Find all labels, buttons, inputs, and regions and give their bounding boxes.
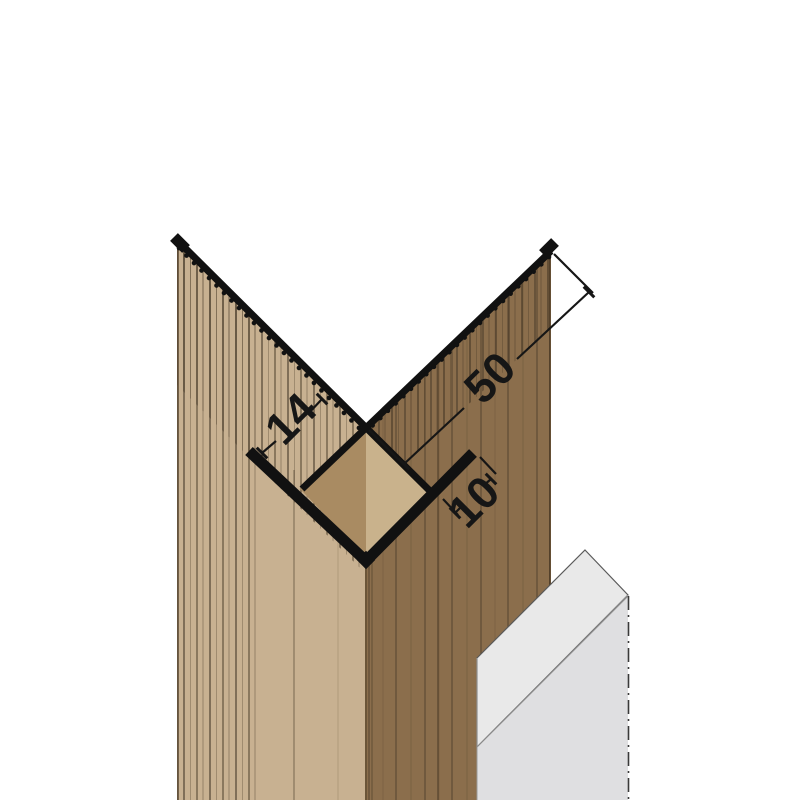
corner-profile-technical-drawing: 14 50 10 xyxy=(0,0,800,800)
drawing-canvas: 14 50 10 xyxy=(0,0,800,800)
